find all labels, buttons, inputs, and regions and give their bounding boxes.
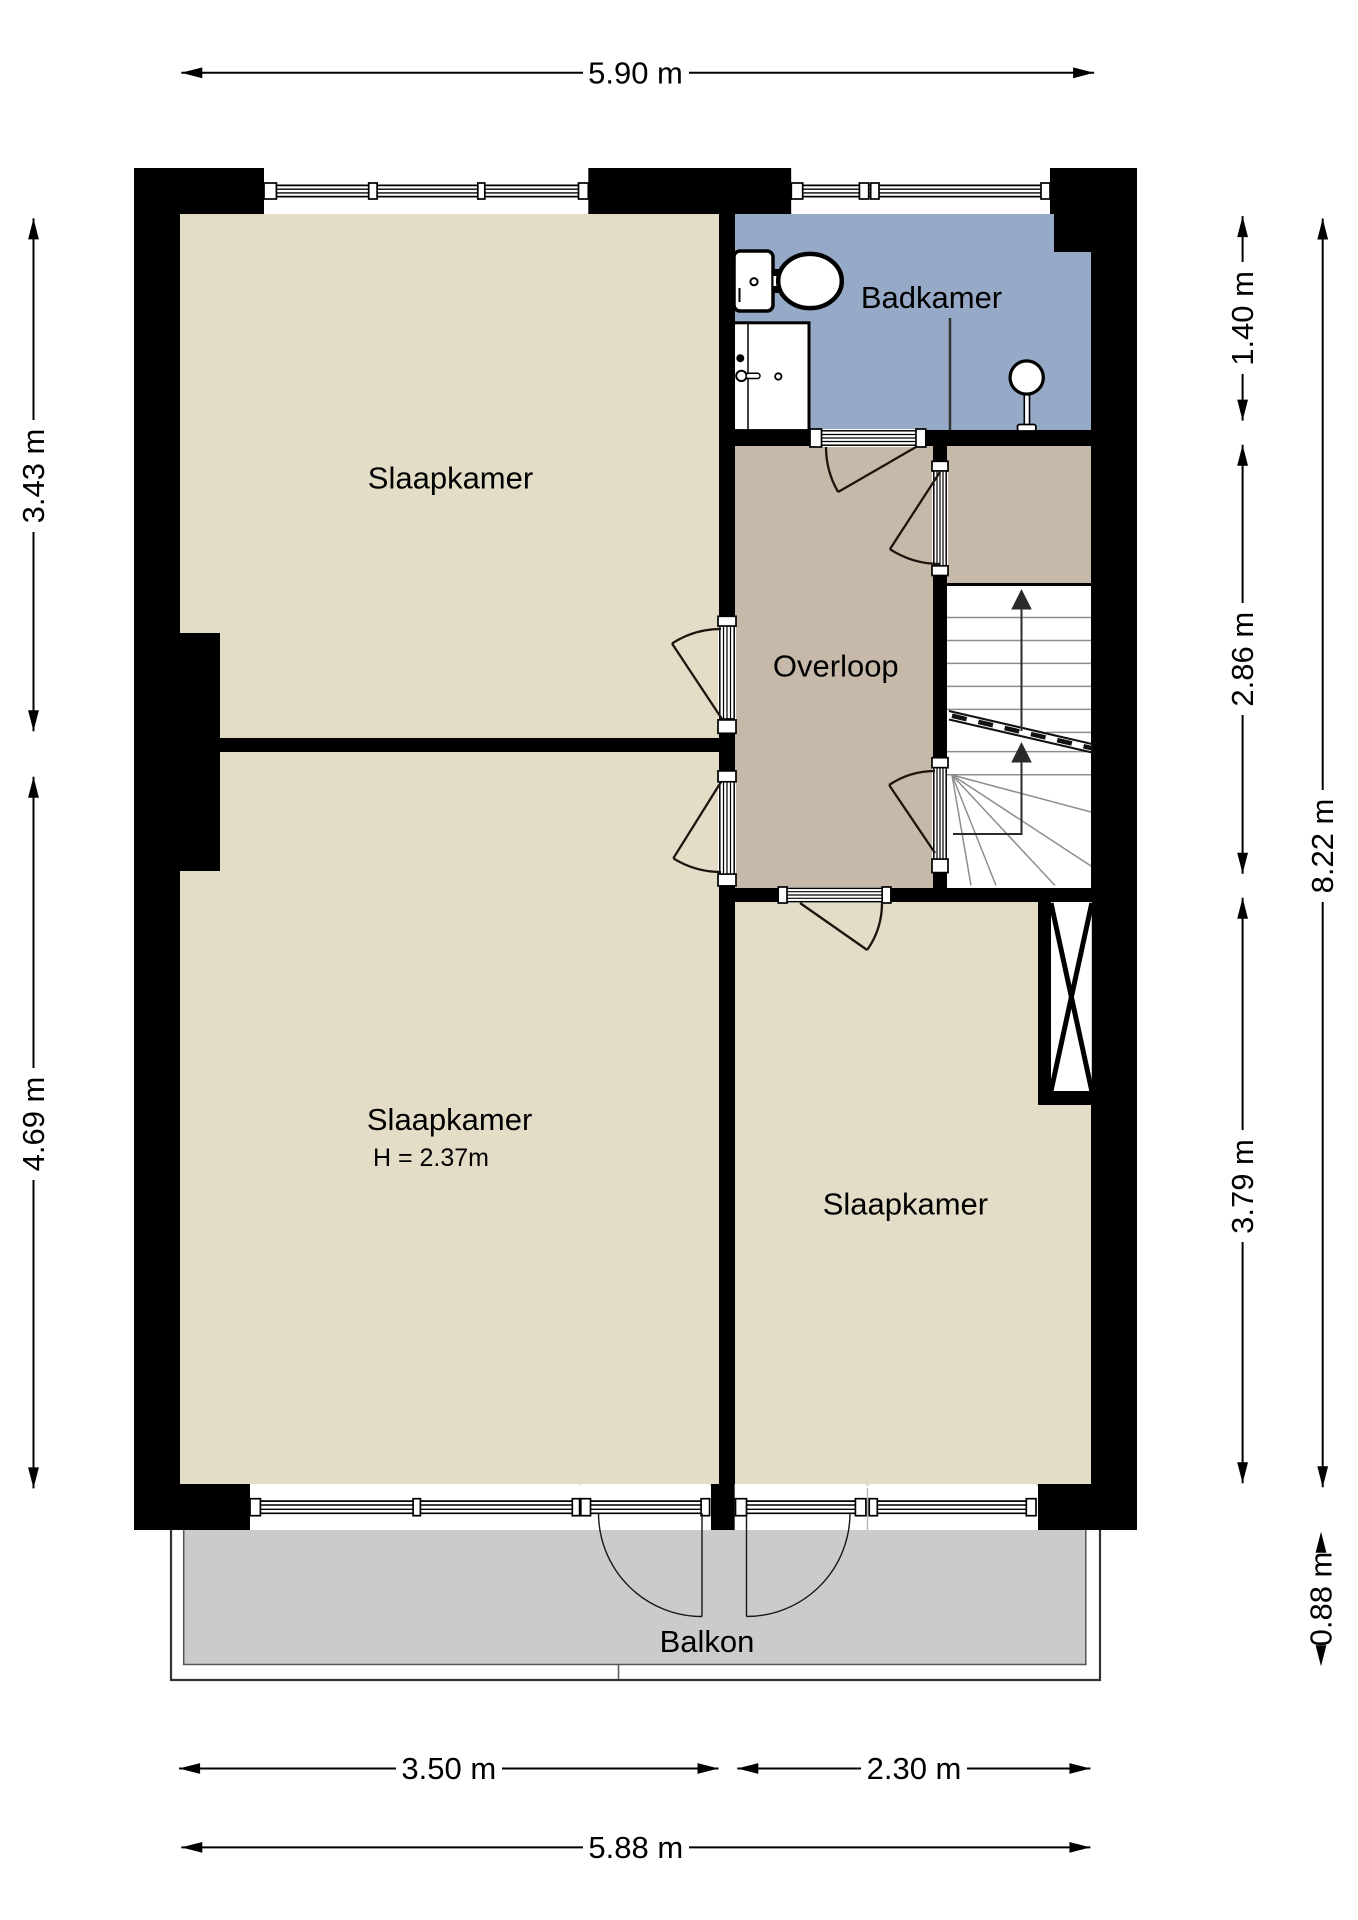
svg-text:1.40 m: 1.40 m bbox=[1225, 271, 1260, 366]
svg-text:5.88 m: 5.88 m bbox=[588, 1830, 683, 1865]
svg-text:5.90 m: 5.90 m bbox=[588, 55, 683, 90]
svg-text:3.79 m: 3.79 m bbox=[1225, 1139, 1260, 1234]
svg-text:0.88 m: 0.88 m bbox=[1304, 1552, 1339, 1647]
svg-text:2.30 m: 2.30 m bbox=[867, 1751, 962, 1786]
svg-text:H = 2.37m: H = 2.37m bbox=[373, 1144, 489, 1172]
svg-text:Overloop: Overloop bbox=[773, 649, 899, 684]
svg-text:3.50 m: 3.50 m bbox=[401, 1751, 496, 1786]
svg-text:Slaapkamer: Slaapkamer bbox=[823, 1187, 988, 1222]
svg-text:Slaapkamer: Slaapkamer bbox=[367, 1102, 532, 1137]
svg-text:8.22 m: 8.22 m bbox=[1305, 799, 1340, 894]
svg-text:3.43 m: 3.43 m bbox=[16, 429, 51, 524]
svg-text:Balkon: Balkon bbox=[660, 1624, 755, 1659]
svg-text:Slaapkamer: Slaapkamer bbox=[368, 460, 533, 495]
svg-text:Badkamer: Badkamer bbox=[861, 280, 1002, 315]
svg-text:2.86 m: 2.86 m bbox=[1225, 612, 1260, 707]
svg-text:4.69 m: 4.69 m bbox=[16, 1077, 51, 1172]
